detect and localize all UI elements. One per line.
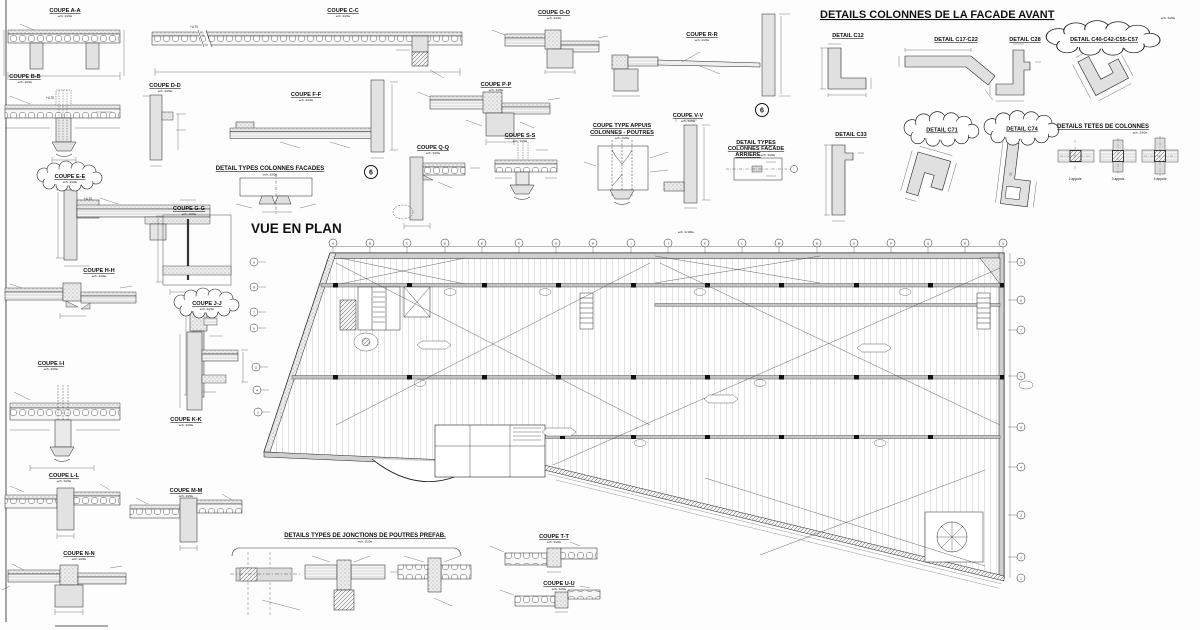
elevation-mark: +4.70 <box>190 25 198 29</box>
detail-c28-graphic <box>990 44 1041 101</box>
coupe-v-v-scale: ech.:1/20e <box>681 119 696 123</box>
coupe-m-m-scale: ech.:1/20e <box>179 494 194 498</box>
coupe-s-s-scale: ech.:1/20e <box>513 139 528 143</box>
plan-grid-bubbles-top: A B C D E F G H I J K L M N O P Q R S <box>329 239 1007 247</box>
tetes-label-3appuis: 3 appuis <box>1112 177 1125 181</box>
detail-c33-graphic <box>824 145 864 221</box>
vue-en-plan-scale: ech.:1/100e <box>678 230 694 234</box>
coupe-type-appuis-graphic <box>584 131 668 205</box>
coupe-j-j-scale: ech.:1/20e <box>200 307 215 311</box>
coupe-d-d-graphic <box>143 95 186 166</box>
detail-c17-title: DETAIL C17-C22 <box>934 37 978 43</box>
coupe-l-l-graphic <box>5 484 120 539</box>
coupe-p-p-graphic <box>418 92 560 145</box>
grid-row: 3 <box>257 410 259 414</box>
coupe-u-u-scale: ech.:1/20e <box>552 587 567 591</box>
tetes-label-2appuis: 2 appuis <box>1069 177 1082 181</box>
tetes-label-4appuis: 4 appuis <box>1154 177 1167 181</box>
facade-avant-title: DETAILS COLONNES DE LA FACADE AVANT <box>820 9 1055 21</box>
coupe-g-g-scale: ech.:1/20e <box>182 212 197 216</box>
coupe-s-s-graphic <box>495 142 557 200</box>
coupe-a-a-graphic <box>4 24 124 80</box>
coupe-t-t-graphic <box>490 542 597 572</box>
coupe-u-u-graphic <box>500 586 600 612</box>
detail-c74-graphic <box>995 136 1041 207</box>
detail-c12-graphic <box>820 44 871 97</box>
coupe-q-q-graphic <box>393 157 480 229</box>
jonctions-scale: ech.:1/20e <box>358 540 373 544</box>
grid-row: 6 <box>253 326 255 330</box>
detail-colonnes-facades-title: DETAIL TYPES COLONNES FACADES <box>216 166 324 172</box>
elevation-mark: +4.70 <box>84 197 92 201</box>
detail-c17-c22-graphic <box>899 48 995 100</box>
detail-c28-title: DETAIL C28 <box>1009 37 1041 43</box>
grid-letter: B <box>369 241 371 245</box>
coupe-h-h-graphic <box>5 283 136 319</box>
facade-avant-scale: ech.:1/20e <box>1161 16 1176 20</box>
ref-bubble-1: 6 <box>365 166 378 179</box>
coupe-q-q-scale: ech.:1/20e <box>426 151 441 155</box>
coupe-v-v-graphic <box>664 118 710 208</box>
grid-letter: I <box>631 241 632 245</box>
coupe-e-e-scale: ech.:1/20e <box>63 180 78 184</box>
ref-bubble-number: 6 <box>760 108 764 115</box>
grid-letter: S <box>1002 241 1004 245</box>
grid-row: 7 <box>1020 328 1022 332</box>
coupe-k-k-graphic <box>180 332 248 410</box>
grid-row: 8 <box>253 285 255 289</box>
detail-c74-title: DETAIL C74 <box>1006 127 1038 133</box>
coupe-g-g-graphic <box>156 215 231 295</box>
grid-row: 1 <box>1020 576 1022 580</box>
tetes-colonnes-graphic <box>1058 136 1178 176</box>
coupe-b-b-graphic <box>5 90 120 163</box>
coupe-c-c-graphic <box>152 30 462 78</box>
elevation-mark: +4.70 <box>46 96 54 100</box>
coupe-h-h-scale: ech.:1/20e <box>92 274 107 278</box>
detail-c71-graphic <box>899 145 958 210</box>
detail-colonnes-facades-scale: ech.:1/50e <box>263 173 278 177</box>
grid-letter: E <box>481 241 483 245</box>
tetes-scale: ech.:1/50e <box>1133 131 1148 135</box>
plan-grid-bubbles-right: 9 8 7 6 5 4 3 2 1 <box>1017 258 1025 582</box>
tetes-title: DETAILS TETES DE COLONNES <box>1057 124 1149 130</box>
coupe-l-l-scale: ech.:1/20e <box>57 479 72 483</box>
coupe-d-d-scale: ech.:1/20e <box>158 89 173 93</box>
coupe-f-f-scale: ech.:1/20e <box>299 98 314 102</box>
grid-row: 7 <box>253 310 255 314</box>
coupe-c-c-scale: ech.:1/20e <box>336 14 351 18</box>
plan-grid-bubbles-left: 9 8 7 6 5 4 3 <box>250 258 262 416</box>
detail-facade-arriere-graphic <box>726 158 798 180</box>
grid-row: 4 <box>256 388 258 392</box>
coupe-o-o-scale: ech.:1/20e <box>547 16 562 20</box>
coupe-i-i-graphic <box>10 385 120 471</box>
drawing-sheet: A B C D E F G H I J K L M N O P Q R S 9 … <box>0 0 1200 630</box>
coupe-n-n-scale: ech.:1/20e <box>72 557 87 561</box>
grid-row: 8 <box>1020 298 1022 302</box>
grid-letter: L <box>741 241 743 245</box>
coupe-type-appuis-line1: COUPE TYPE APPUIS <box>593 123 651 129</box>
detail-colonnes-facades-graphic <box>236 174 316 214</box>
grid-letter: F <box>518 241 520 245</box>
coupe-type-appuis-scale: ech.:1/20e <box>615 136 630 140</box>
jonctions-graphic <box>230 548 471 615</box>
grid-letter: N <box>816 241 818 245</box>
detail-c40-title: DETAIL C40-C42-C55-C57 <box>1070 37 1138 43</box>
detail-c33-title: DETAIL C33 <box>835 132 867 138</box>
coupe-k-k-scale: ech.:1/20e <box>179 423 194 427</box>
jonctions-title: DETAILS TYPES DE JONCTIONS DE POUTRES PR… <box>284 533 446 539</box>
coupe-a-a-scale: ech.:1/20e <box>58 14 73 18</box>
vue-en-plan-title: VUE EN PLAN <box>251 221 342 236</box>
coupe-m-m-graphic <box>130 494 242 551</box>
grid-row: 3 <box>1020 513 1022 517</box>
coupe-i-i-scale: ech.:1/20e <box>44 367 59 371</box>
coupe-t-t-scale: ech.:1/20e <box>547 540 562 544</box>
grid-row: 6 <box>1020 374 1022 378</box>
grid-letter: M <box>778 241 781 245</box>
coupe-r-r-graphic <box>612 14 790 96</box>
grid-row: 5 <box>1020 425 1022 429</box>
facade-arriere-scale: ech.:1/20e <box>761 153 776 157</box>
grid-row: 2 <box>1020 555 1022 559</box>
coupe-r-r-scale: ech.:1/20e <box>695 38 710 42</box>
coupe-b-b-scale: ech.:1/20e <box>18 80 33 84</box>
ref-bubble-2: 6 <box>756 104 769 117</box>
grid-row: 9 <box>253 260 255 264</box>
grid-letter: H <box>592 241 594 245</box>
grid-row: 4 <box>1020 465 1022 469</box>
drawing-canvas: A B C D E F G H I J K L M N O P Q R S 9 … <box>0 0 1200 630</box>
coupe-n-n-graphic <box>2 564 126 615</box>
coupe-p-p-scale: ech.:1/20e <box>489 88 504 92</box>
facade-arriere-line3: ARRIERE <box>735 152 760 158</box>
detail-c12-title: DETAIL C12 <box>832 33 864 39</box>
grid-row: 5 <box>255 365 257 369</box>
grid-letter: P <box>890 241 892 245</box>
grid-row: 9 <box>1020 260 1022 264</box>
ref-bubble-number: 6 <box>369 170 373 177</box>
coupe-o-o-graphic <box>492 30 608 74</box>
detail-c71-title: DETAIL C71 <box>926 128 958 134</box>
